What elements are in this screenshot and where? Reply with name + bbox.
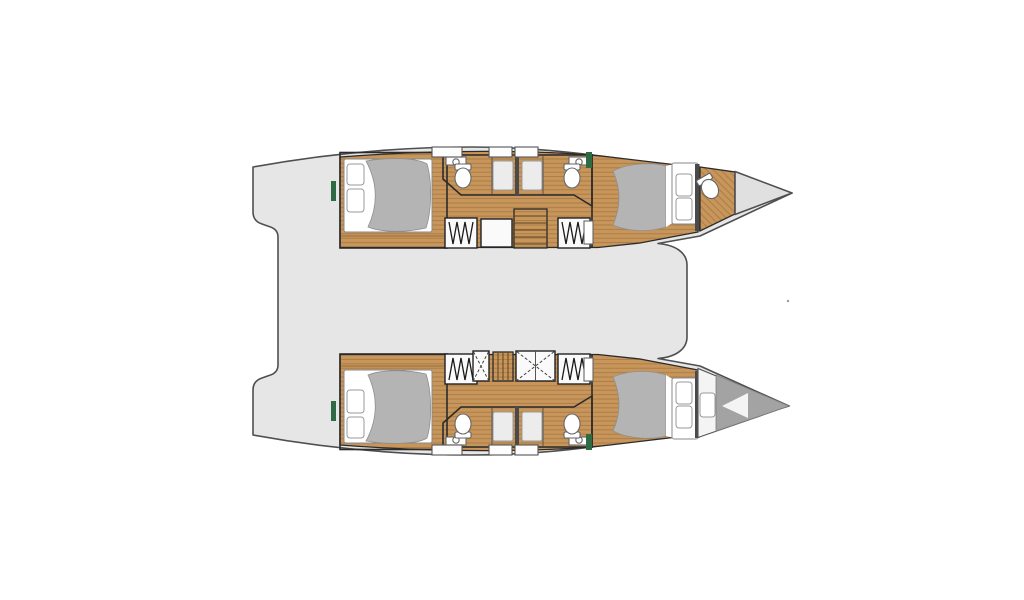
bow-bulkhead [695,164,700,231]
green-trim-panel [331,181,336,201]
starboard-hull-interior [331,354,700,455]
bow-berth-pillow [700,393,715,417]
forward-bed-pillow [676,174,692,196]
stair-landing [481,219,512,247]
bow-berth-cushion [716,375,789,431]
locker [584,221,593,244]
staircase [514,209,547,248]
deck-plan-canvas [0,0,1024,600]
forepeak-locker [735,172,792,215]
aft-bed-pillow [347,189,364,212]
toilet [455,164,471,188]
green-trim-panel [586,152,592,168]
aft-bed-pillow [347,164,364,185]
bathroom-center-wall [515,156,519,195]
shower-stall [522,161,542,190]
deck-hatch [515,147,538,157]
toilet [564,164,580,188]
shower-stall [493,161,513,190]
forward-bed-duvet [613,164,666,231]
print-speck [787,300,789,302]
floor-plan-page [0,0,1024,600]
aft-bed-duvet [366,159,431,232]
deck-hatch [432,147,462,157]
forward-bed-pillow [676,198,692,220]
starboard-hull [331,351,789,455]
deck-hatch [489,147,512,157]
